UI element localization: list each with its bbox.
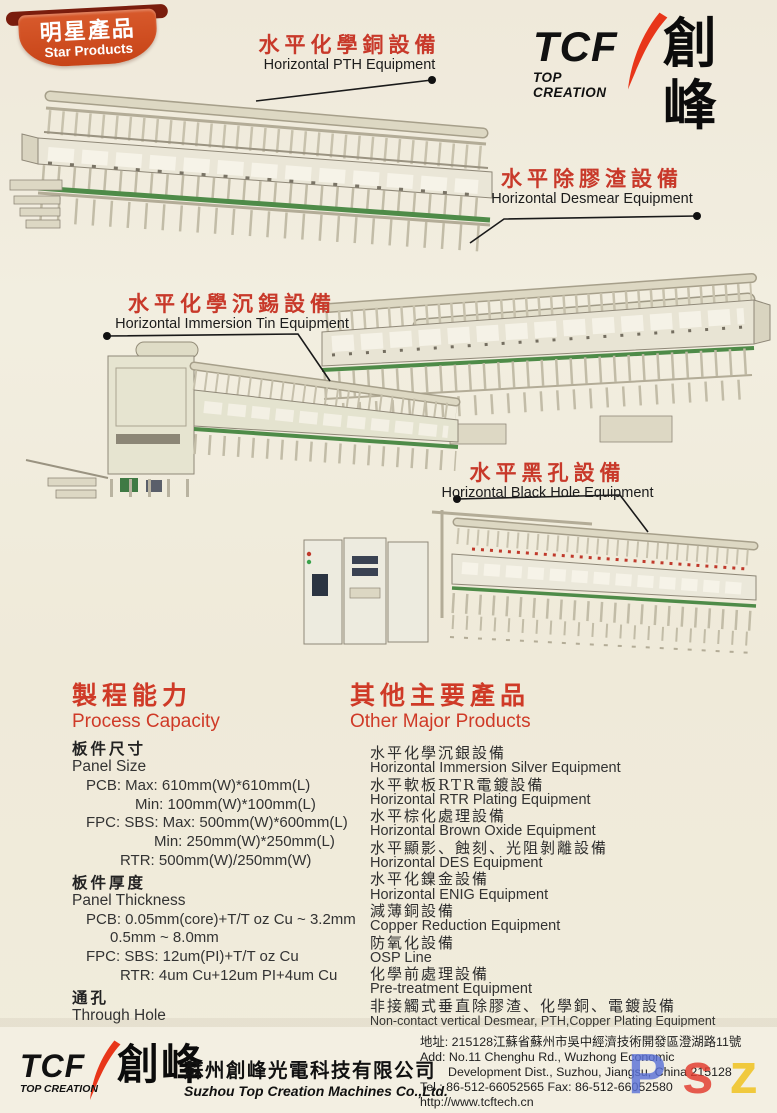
spec-line: FPC: SBS: 12um(PI)+T/T oz Cu (72, 948, 372, 967)
status-lamp-green (307, 560, 311, 564)
spec-line: 0.5mm ~ 8.0mm (72, 929, 372, 948)
callout-black-hole-zh: 水平黑孔設備 (440, 461, 655, 485)
stair-step (48, 478, 96, 486)
control-cabinet (388, 542, 428, 642)
footer-divider (0, 1018, 777, 1027)
product-zh: 水平棕化處理設備 (370, 808, 740, 824)
process-capacity-title-zh: 製程能力 (72, 681, 372, 710)
product-zh: 非接觸式垂直除膠渣、化學銅、電鍍設備 (370, 998, 740, 1014)
machine-black-hole-photo (292, 496, 777, 671)
leader-dot-desmear (693, 212, 701, 220)
product-zh: 水平化學沉銀設備 (370, 745, 740, 761)
logo-tcf-text: TCF (533, 26, 638, 68)
stairs-platform (10, 180, 62, 190)
other-products-section: 其他主要產品 Other Major Products 水平化學沉銀設備 Hor… (350, 681, 740, 1029)
badge-title-en: Star Products (44, 40, 133, 61)
product-zh: 水平顯影、蝕刻、光阻剝離設備 (370, 840, 740, 856)
callout-black-hole: 水平黑孔設備 Horizontal Black Hole Equipment (440, 461, 655, 502)
company-logo: TCF TOP CREATION 創峰 (533, 12, 777, 136)
list-item: 水平軟板RTR電鍍設備 Horizontal RTR Plating Equip… (370, 777, 740, 809)
feet-line (450, 637, 754, 653)
spec-line: RTR: 500mm(W)/250mm(W) (72, 852, 372, 871)
watermark-letter: s (682, 1044, 714, 1104)
through-hole-label-zh: 通孔 (72, 988, 372, 1007)
spec-line: PCB: 0.05mm(core)+T/T oz Cu ~ 3.2mm (72, 911, 372, 930)
callout-immersion-tin: 水平化學沉錫設備 Horizontal Immersion Tin Equipm… (82, 292, 382, 333)
floor-tank (600, 416, 672, 442)
product-zh: 水平軟板RTR電鍍設備 (370, 777, 740, 793)
top-pipe (457, 522, 754, 546)
product-zh: 水平化鎳金設備 (370, 871, 740, 887)
callout-black-hole-en: Horizontal Black Hole Equipment (440, 485, 655, 502)
machine-end-cap (754, 300, 770, 344)
product-en: Pre-treatment Equipment (370, 982, 740, 997)
list-item: 水平棕化處理設備 Horizontal Brown Oxide Equipmen… (370, 808, 740, 840)
panel-size-label-zh: 板件尺寸 (72, 739, 372, 758)
spec-line: RTR: 4um Cu+12um PI+4um Cu (72, 967, 372, 986)
process-capacity-title-en: Process Capacity (72, 710, 372, 734)
spec-line: FPC: SBS: Max: 500mm(W)*600mm(L) (72, 814, 372, 833)
watermark-letter: P (628, 1044, 666, 1104)
callout-immersion-tin-zh: 水平化學沉錫設備 (82, 292, 382, 316)
brochure-page: 明星產品 Star Products TCF TOP CREATION 創峰 水… (0, 0, 777, 1113)
badge-body: 明星產品 Star Products (18, 8, 159, 68)
panel-thickness-label-en: Panel Thickness (72, 892, 372, 911)
callout-immersion-tin-en: Horizontal Immersion Tin Equipment (82, 316, 382, 333)
status-lamp-red (307, 552, 311, 556)
machine-pth-photo (8, 76, 518, 256)
panel-thickness-label-zh: 板件厚度 (72, 873, 372, 892)
list-item: 水平顯影、蝕刻、光阻剝離設備 Horizontal DES Equipment (370, 840, 740, 872)
product-zh: 減薄銅設備 (370, 903, 740, 919)
product-en: OSP Line (370, 951, 740, 966)
list-item: 減薄銅設備 Copper Reduction Equipment (370, 903, 740, 935)
spec-line: Min: 100mm(W)*100mm(L) (72, 796, 372, 815)
callout-pth-en: Horizontal PTH Equipment (252, 57, 447, 74)
watermark: P s z n h (628, 1044, 777, 1104)
list-item: 防氧化設備 OSP Line (370, 935, 740, 967)
control-panel (352, 568, 378, 576)
footer-logo-subtitle: TOP CREATION (20, 1083, 98, 1095)
spec-line: PCB: Max: 610mm(W)*610mm(L) (72, 777, 372, 796)
product-en: Copper Reduction Equipment (370, 919, 740, 934)
table-edge (38, 193, 490, 225)
product-en: Horizontal Immersion Silver Equipment (370, 761, 740, 776)
other-products-title-zh: 其他主要產品 (350, 681, 740, 710)
watermark-letter: z (729, 1044, 758, 1104)
control-panel (352, 556, 378, 564)
product-en: Horizontal ENIG Equipment (370, 888, 740, 903)
star-products-badge: 明星產品 Star Products (11, 3, 166, 69)
other-products-title-en: Other Major Products (350, 710, 740, 734)
machine-end-cap (22, 134, 38, 164)
front-rail (26, 460, 108, 478)
head-slot (116, 434, 180, 444)
product-zh: 化學前處理設備 (370, 966, 740, 982)
logo-subtitle: TOP CREATION (533, 70, 638, 100)
stair-step (20, 208, 60, 216)
spec-line: Min: 250mm(W)*250mm(L) (72, 833, 372, 852)
product-en: Horizontal DES Equipment (370, 856, 740, 871)
callout-desmear-en: Horizontal Desmear Equipment (472, 191, 712, 208)
company-name-block: 蘇州創峰光電科技有限公司 Suzhou Top Creation Machine… (184, 1060, 448, 1100)
head-cabinet (108, 356, 194, 474)
footer-logo: TCF TOP CREATION 創峰 (20, 1040, 205, 1102)
callout-desmear: 水平除膠渣設備 Horizontal Desmear Equipment (472, 167, 712, 208)
mid-legs (194, 444, 456, 461)
product-zh: 防氧化設備 (370, 935, 740, 951)
footer-logo-tcf-text: TCF (20, 1050, 98, 1082)
stair-step (14, 196, 60, 204)
list-item: 化學前處理設備 Pre-treatment Equipment (370, 966, 740, 998)
other-products-list: 水平化學沉銀設備 Horizontal Immersion Silver Equ… (350, 745, 740, 1029)
logo-chinese-name: 創峰 (663, 12, 777, 136)
mid-legs (452, 603, 754, 621)
control-screen (312, 574, 328, 596)
callout-desmear-zh: 水平除膠渣設備 (472, 167, 712, 191)
panel-size-label-en: Panel Size (72, 758, 372, 777)
stair-step (26, 220, 60, 228)
list-item: 水平化鎳金設備 Horizontal ENIG Equipment (370, 871, 740, 903)
product-en: Horizontal RTR Plating Equipment (370, 793, 740, 808)
product-en: Horizontal Brown Oxide Equipment (370, 824, 740, 839)
list-item: 水平化學沉銀設備 Horizontal Immersion Silver Equ… (370, 745, 740, 777)
company-name-zh: 蘇州創峰光電科技有限公司 (184, 1060, 448, 1083)
stair-step (56, 490, 96, 498)
callout-pth: 水平化學銅設備 Horizontal PTH Equipment (252, 33, 447, 74)
button-row (350, 588, 380, 598)
company-name-en: Suzhou Top Creation Machines Co.,Ltd. (184, 1083, 448, 1100)
callout-pth-zh: 水平化學銅設備 (252, 33, 447, 57)
